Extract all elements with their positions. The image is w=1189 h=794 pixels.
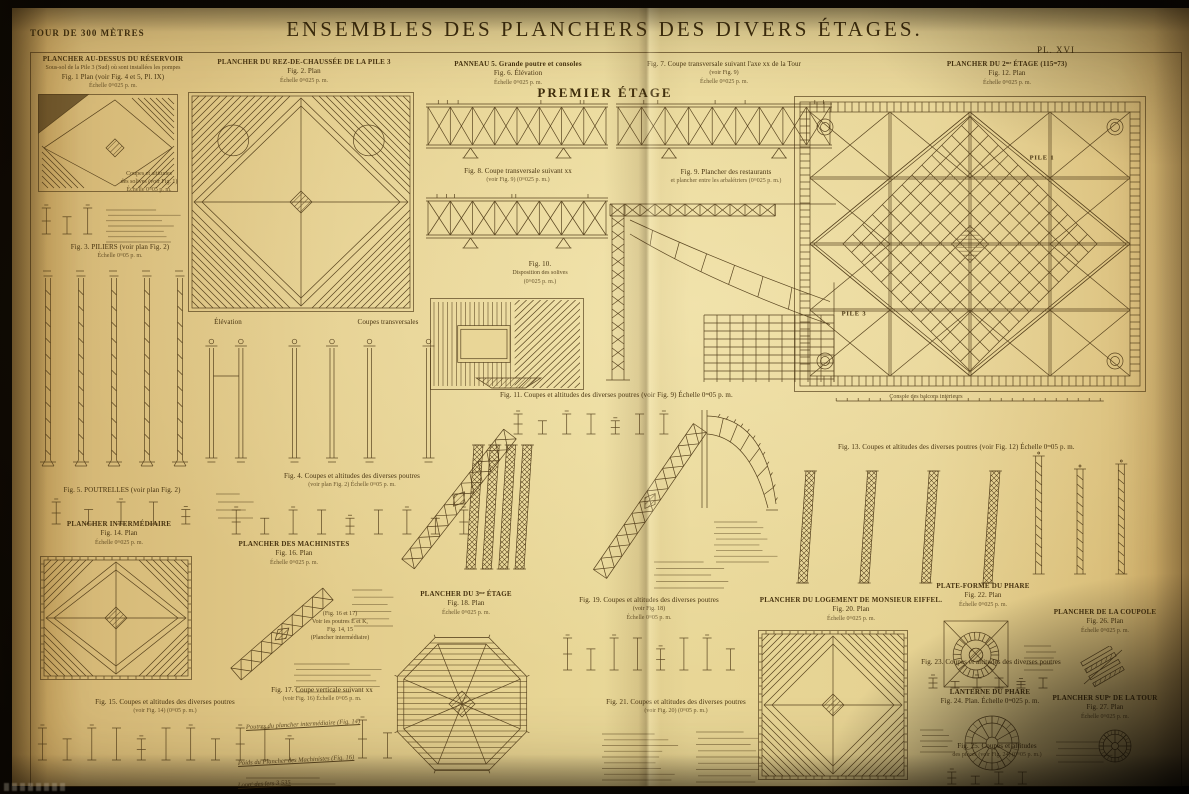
- caption-fig20: PLANCHER DU LOGEMENT DE MONSIEUR EIFFEL.…: [746, 596, 956, 623]
- caption-line: des pièces (voir Fig. 24) (0ᵐ05 p. m.): [928, 751, 1066, 759]
- caption-line: Échelle 0ᵐ025 p. m.: [396, 609, 536, 617]
- caption-line: (Plancher intermédiaire): [290, 634, 390, 642]
- sketch-fig14-diamondPlan: [40, 556, 192, 680]
- caption-fig2: PLANCHER DU REZ-DE-CHAUSSÉE DE LA PILE 3…: [196, 58, 412, 85]
- caption-fig17: Fig. 17. Coupe verticale suivant xx(voir…: [238, 686, 406, 704]
- caption-line: des solives (voir Fig. 1): [102, 178, 196, 186]
- caption-line: Fig. 8. Coupe transversale suivant xx: [426, 167, 610, 176]
- caption-fig3: Fig. 3. PILIERS (voir plan Fig. 2)Échell…: [46, 243, 194, 261]
- caption-line: Fig. 6. Élévation: [424, 69, 612, 78]
- sketch-fig11-strips: [462, 442, 536, 572]
- caption-line: Échelle 0ᵐ05 p. m.: [102, 186, 196, 194]
- caption-console-label: Console des balcons intérieurs: [842, 393, 1010, 401]
- caption-machinistes-table: Poids du Plancher des Machinistes (Fig. …: [238, 750, 388, 793]
- caption-fig14: PLANCHER INTERMÉDIAIREFig. 14. PlanÉchel…: [50, 520, 188, 547]
- caption-line: PLANCHER DU REZ-DE-CHAUSSÉE DE LA PILE 3: [196, 58, 412, 67]
- sketch-fig19-sectionsRow: [556, 634, 742, 674]
- caption-line: PANNEAU 5. Grande poutre et consoles: [424, 60, 612, 69]
- caption-line: Fig. 1 Plan (voir Fig. 4 et 5, Pl. IX): [36, 73, 190, 82]
- caption-coupes-label: Coupes transversales: [318, 318, 458, 327]
- caption-line: Voir les poutres E et K,: [290, 618, 390, 626]
- caption-line: Disposition des solives: [494, 269, 586, 277]
- caption-line: Fig. 19. Coupes et altitudes des diverse…: [556, 596, 742, 605]
- sketch-fig3-piers: [40, 266, 188, 476]
- caption-line: Fig. 17. Coupe verticale suivant xx: [238, 686, 406, 695]
- caption-line: Échelle 0ᵐ05 p. m.: [556, 614, 742, 622]
- caption-line: Échelle 0ᵐ025 p. m.: [746, 615, 956, 623]
- sketch-machinistes-table-textlines: [244, 776, 364, 786]
- caption-fig27: PLANCHER SUPʳ DE LA TOURFig. 27. PlanÉch…: [1038, 694, 1172, 721]
- caption-fig25: Fig. 25. Coupes et altitudesdes pièces (…: [928, 742, 1066, 760]
- caption-line: (voir Fig. 18): [556, 605, 742, 613]
- caption-line: Échelle 0ᵐ025 p. m.: [1038, 627, 1172, 635]
- caption-line: Échelle 0ᵐ05 p. m.: [46, 252, 194, 260]
- caption-line: (0ᵐ025 p. m.): [494, 278, 586, 286]
- sketch-fig8-truss: [424, 192, 610, 250]
- sketch-fig11-arcConsole: [696, 404, 782, 514]
- sketch-fig18-octagonPlan: [388, 628, 536, 780]
- caption-fig22: PLATE-FORME DU PHAREFig. 22. PlanÉchelle…: [928, 582, 1038, 609]
- caption-line: Fig. 14, 15: [290, 626, 390, 634]
- caption-line: PLANCHER DU 2ᵐᵉ ÉTAGE (115ᵐ73): [884, 60, 1130, 69]
- caption-line: Fig. 3. PILIERS (voir plan Fig. 2): [46, 243, 194, 252]
- caption-elevation-label: Élévation: [196, 318, 260, 327]
- caption-line: Fig. 21. Coupes et altitudes des diverse…: [556, 698, 796, 707]
- sketch-fig25-sectionsRow: [940, 768, 1034, 788]
- caption-line: PLANCHER INTERMÉDIAIRE: [50, 520, 188, 529]
- caption-line: PLANCHER DES MACHINISTES: [218, 540, 370, 549]
- caption-line: Fig. 20. Plan: [746, 605, 956, 614]
- caption-line: Échelle 0ᵐ025 p. m.: [1038, 713, 1172, 721]
- caption-fig8: Fig. 8. Coupe transversale suivant xx(vo…: [426, 167, 610, 185]
- sketch-fig26-smallHatch: [1080, 646, 1126, 688]
- sketch-fig11-girderDiag: [588, 414, 708, 582]
- sketch-fig12-bigPlan: [794, 96, 1146, 408]
- caption-fig18: PLANCHER DU 3ᵐᵉ ÉTAGEFig. 18. PlanÉchell…: [396, 590, 536, 617]
- caption-line: Échelle 0ᵐ025 p. m.: [612, 78, 836, 86]
- caption-line: Fig. 7. Coupe transversale suivant l'axe…: [612, 60, 836, 69]
- caption-line: Fig. 26. Plan: [1038, 617, 1172, 626]
- caption-line: Fig. 5. POUTRELLES (voir plan Fig. 2): [44, 486, 200, 495]
- caption-line: Échelle 0ᵐ025 p. m.: [928, 601, 1038, 609]
- caption-line: Coupes et altitudes: [102, 170, 196, 178]
- caption-line: (voir Fig. 9) (0ᵐ025 p. m.): [426, 176, 610, 184]
- caption-fig16: PLANCHER DES MACHINISTESFig. 16. PlanÉch…: [218, 540, 370, 567]
- caption-line: Échelle 0ᵐ025 p. m.: [424, 79, 612, 87]
- caption-line: Fig. 11. Coupes et altitudes des diverse…: [500, 391, 890, 400]
- caption-line: Fig. 23. Coupes et altitudes des diverse…: [906, 658, 1076, 667]
- caption-line: Échelle 0ᵐ025 p. m.: [50, 539, 188, 547]
- caption-line: Échelle 0ᵐ025 p. m.: [884, 79, 1130, 87]
- caption-line: PLANCHER DU LOGEMENT DE MONSIEUR EIFFEL.: [746, 596, 956, 605]
- caption-line: Échelle 0ᵐ025 p. m.: [36, 82, 190, 90]
- caption-line: Fig. 16. Plan: [218, 549, 370, 558]
- sketch-fig1-solives-sectionsRow: [36, 204, 98, 238]
- caption-line: PLANCHER AU-DESSUS DU RÉSERVOIR: [36, 55, 190, 64]
- sketch-fig21-textlines: [694, 730, 772, 784]
- caption-line: Échelle 0ᵐ025 p. m.: [196, 77, 412, 85]
- caption-line: PLATE-FORME DU PHARE: [928, 582, 1038, 591]
- caption-line: Fig. 2. Plan: [196, 67, 412, 76]
- plan-label-fig12: PILE 1: [1030, 155, 1055, 162]
- caption-line: Fig. 12. Plan: [884, 69, 1130, 78]
- caption-line: PLANCHER DU 3ᵐᵉ ÉTAGE: [396, 590, 536, 599]
- caption-fig1: PLANCHER AU-DESSUS DU RÉSERVOIRSous-sol …: [36, 55, 190, 90]
- caption-fig12: PLANCHER DU 2ᵐᵉ ÉTAGE (115ᵐ73)Fig. 12. P…: [884, 60, 1130, 87]
- caption-line: PLANCHER SUPʳ DE LA TOUR: [1038, 694, 1172, 703]
- caption-fig19: Fig. 19. Coupes et altitudes des diverse…: [556, 596, 742, 622]
- caption-line: Fig. 22. Plan: [928, 591, 1038, 600]
- sketch-fig21-textlines: [600, 732, 686, 782]
- caption-line: Poutres du plancher intermédiaire (Fig. …: [246, 718, 361, 733]
- sketch-fig6-truss: [424, 98, 610, 160]
- caption-line: (voir Fig. 20) (0ᵐ05 p. m.): [556, 707, 796, 715]
- sketch-fig13-strips: [794, 468, 1004, 586]
- sketch-fig2-diamondPlan: [188, 92, 414, 312]
- caption-fig17-resume: Poutres du plancher intermédiaire (Fig. …: [246, 714, 402, 736]
- imprint-illegible: [4, 783, 68, 791]
- sketch-fig1-solives-textlines: [104, 208, 190, 244]
- plan-label-fig12: PILE 3: [842, 311, 867, 318]
- caption-line: Élévation: [196, 318, 260, 327]
- caption-line: (voir Fig. 16) Échelle 0ᵐ05 p. m.: [238, 695, 406, 703]
- caption-fig6: PANNEAU 5. Grande poutre et consolesFig.…: [424, 60, 612, 87]
- caption-line: Poids du Plancher des Machinistes (Fig. …: [238, 754, 355, 769]
- caption-fig26: PLANCHER DE LA COUPOLEFig. 26. PlanÉchel…: [1038, 608, 1172, 635]
- caption-line: Fig. 18. Plan: [396, 599, 536, 608]
- caption-line: Fig. 10.: [494, 260, 586, 269]
- caption-fig10: Fig. 10.Disposition des solives(0ᵐ025 p.…: [494, 260, 586, 286]
- sketch-fig11-textlines: [652, 560, 734, 590]
- caption-note-16-17: (Fig. 16 et 17)Voir les poutres E et K,F…: [290, 610, 390, 642]
- caption-line: Coupes transversales: [318, 318, 458, 327]
- caption-line: Fig. 27. Plan: [1038, 703, 1172, 712]
- caption-line: (Fig. 16 et 17): [290, 610, 390, 618]
- caption-fig1-solives: Coupes et altitudesdes solives (voir Fig…: [102, 170, 196, 194]
- caption-fig21: Fig. 21. Coupes et altitudes des diverse…: [556, 698, 796, 716]
- caption-line: Fig. 14. Plan: [50, 529, 188, 538]
- sketch-fig13-tallSections: [1018, 450, 1142, 578]
- caption-line: (voir Fig. 9): [612, 69, 836, 77]
- photo-background: TOUR DE 300 MÈTRES ENSEMBLES DES PLANCHE…: [0, 0, 1189, 794]
- caption-line: Fig. 25. Coupes et altitudes: [928, 742, 1066, 751]
- caption-fig11: Fig. 11. Coupes et altitudes des diverse…: [500, 391, 890, 400]
- caption-line: Console des balcons intérieurs: [842, 393, 1010, 401]
- caption-fig5: Fig. 5. POUTRELLES (voir plan Fig. 2): [44, 486, 200, 495]
- caption-line: Échelle 0ᵐ025 p. m.: [218, 559, 370, 567]
- sketch-fig11-textlines: [712, 520, 784, 564]
- caption-line: PLANCHER DE LA COUPOLE: [1038, 608, 1172, 617]
- figures-stage: PLANCHER AU-DESSUS DU RÉSERVOIRSous-sol …: [0, 0, 1189, 794]
- caption-line: Sous-sol de la Pile 3 (Sud) où sont inst…: [36, 64, 190, 72]
- caption-fig23: Fig. 23. Coupes et altitudes des diverse…: [906, 658, 1076, 667]
- caption-fig7: Fig. 7. Coupe transversale suivant l'axe…: [612, 60, 836, 86]
